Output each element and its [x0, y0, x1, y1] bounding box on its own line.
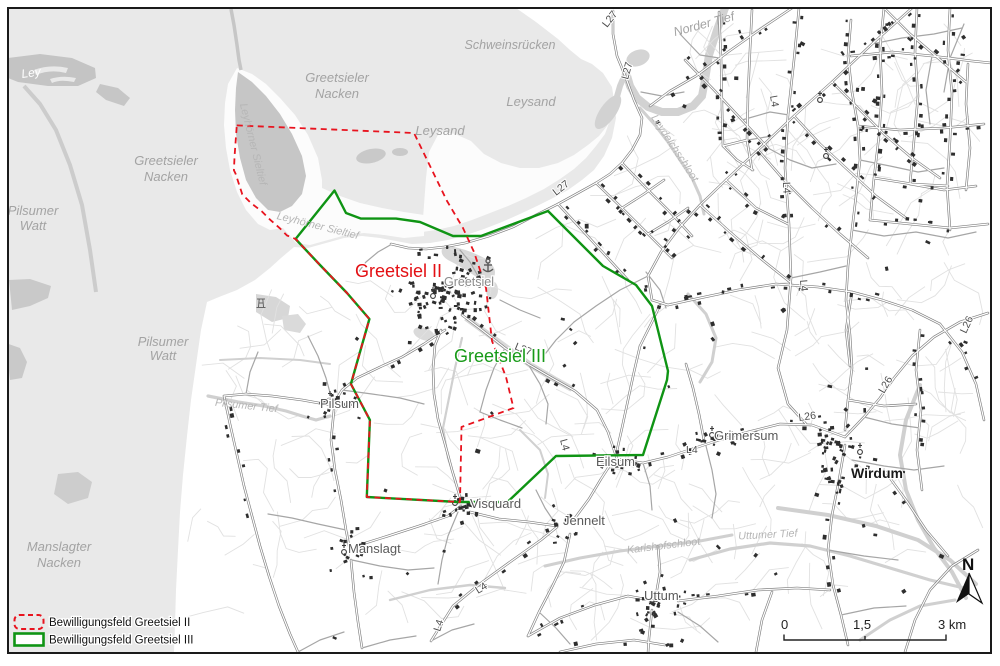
svg-text:1,5: 1,5	[853, 617, 871, 632]
svg-text:Greetsiel III: Greetsiel III	[454, 346, 546, 366]
svg-text:Uttum: Uttum	[644, 588, 679, 603]
svg-text:Pilsum: Pilsum	[320, 396, 359, 411]
svg-text:L4: L4	[780, 182, 792, 194]
svg-text:L26: L26	[798, 410, 817, 424]
svg-text:Nacken: Nacken	[315, 86, 359, 101]
svg-text:Ley: Ley	[20, 64, 42, 81]
svg-text:Greetsiel II: Greetsiel II	[355, 261, 442, 281]
svg-text:Bewilligungsfeld Greetsiel II: Bewilligungsfeld Greetsiel III	[49, 635, 193, 647]
svg-text:Bewilligungsfeld Greetsiel II: Bewilligungsfeld Greetsiel II	[49, 617, 190, 629]
svg-text:Pilsumer: Pilsumer	[8, 203, 59, 218]
svg-text:N: N	[962, 555, 974, 574]
svg-text:Schweinsrücken: Schweinsrücken	[464, 38, 555, 52]
svg-text:Watt: Watt	[150, 348, 178, 363]
svg-text:0: 0	[781, 617, 788, 632]
svg-text:L4: L4	[767, 94, 781, 108]
svg-text:3 km: 3 km	[938, 617, 966, 632]
svg-text:Pilsumer: Pilsumer	[138, 334, 189, 349]
svg-text:Leysand: Leysand	[415, 123, 465, 138]
svg-text:Grimersum: Grimersum	[714, 428, 778, 443]
svg-text:Wirdum: Wirdum	[851, 465, 903, 481]
svg-text:L4: L4	[686, 444, 698, 456]
svg-text:Manslagter: Manslagter	[27, 539, 92, 554]
svg-text:Manslagt: Manslagt	[348, 541, 401, 556]
svg-text:Greetsiel: Greetsiel	[444, 275, 494, 289]
svg-text:Nacken: Nacken	[144, 169, 188, 184]
svg-text:Greetsieler: Greetsieler	[134, 153, 198, 168]
svg-text:L4: L4	[797, 279, 810, 292]
svg-text:Nacken: Nacken	[37, 555, 81, 570]
svg-text:Greetsieler: Greetsieler	[305, 70, 369, 85]
svg-text:Visquard: Visquard	[470, 496, 521, 511]
svg-text:Jennelt: Jennelt	[563, 513, 605, 528]
svg-text:Leysand: Leysand	[506, 94, 556, 109]
svg-text:Watt: Watt	[20, 218, 48, 233]
svg-text:Eilsum: Eilsum	[596, 454, 635, 469]
